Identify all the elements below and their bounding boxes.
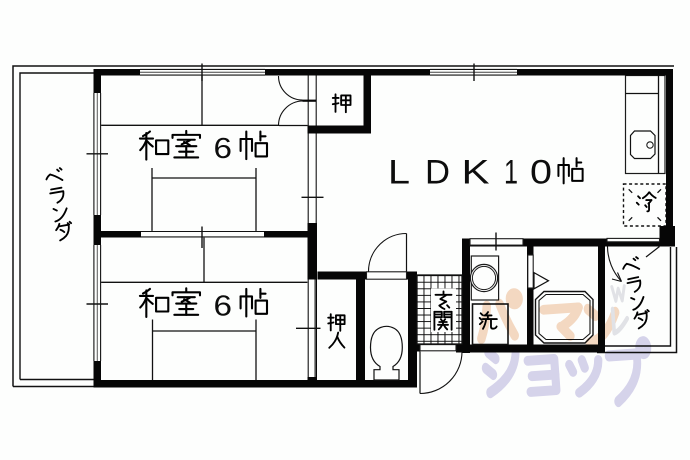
svg-text:K: K <box>462 154 490 192</box>
svg-text:D: D <box>425 154 450 192</box>
svg-text:1: 1 <box>504 154 518 192</box>
svg-text:L: L <box>388 154 410 192</box>
svg-text:6: 6 <box>214 291 233 323</box>
svg-text:0: 0 <box>530 154 552 192</box>
svg-text:6: 6 <box>214 133 233 165</box>
